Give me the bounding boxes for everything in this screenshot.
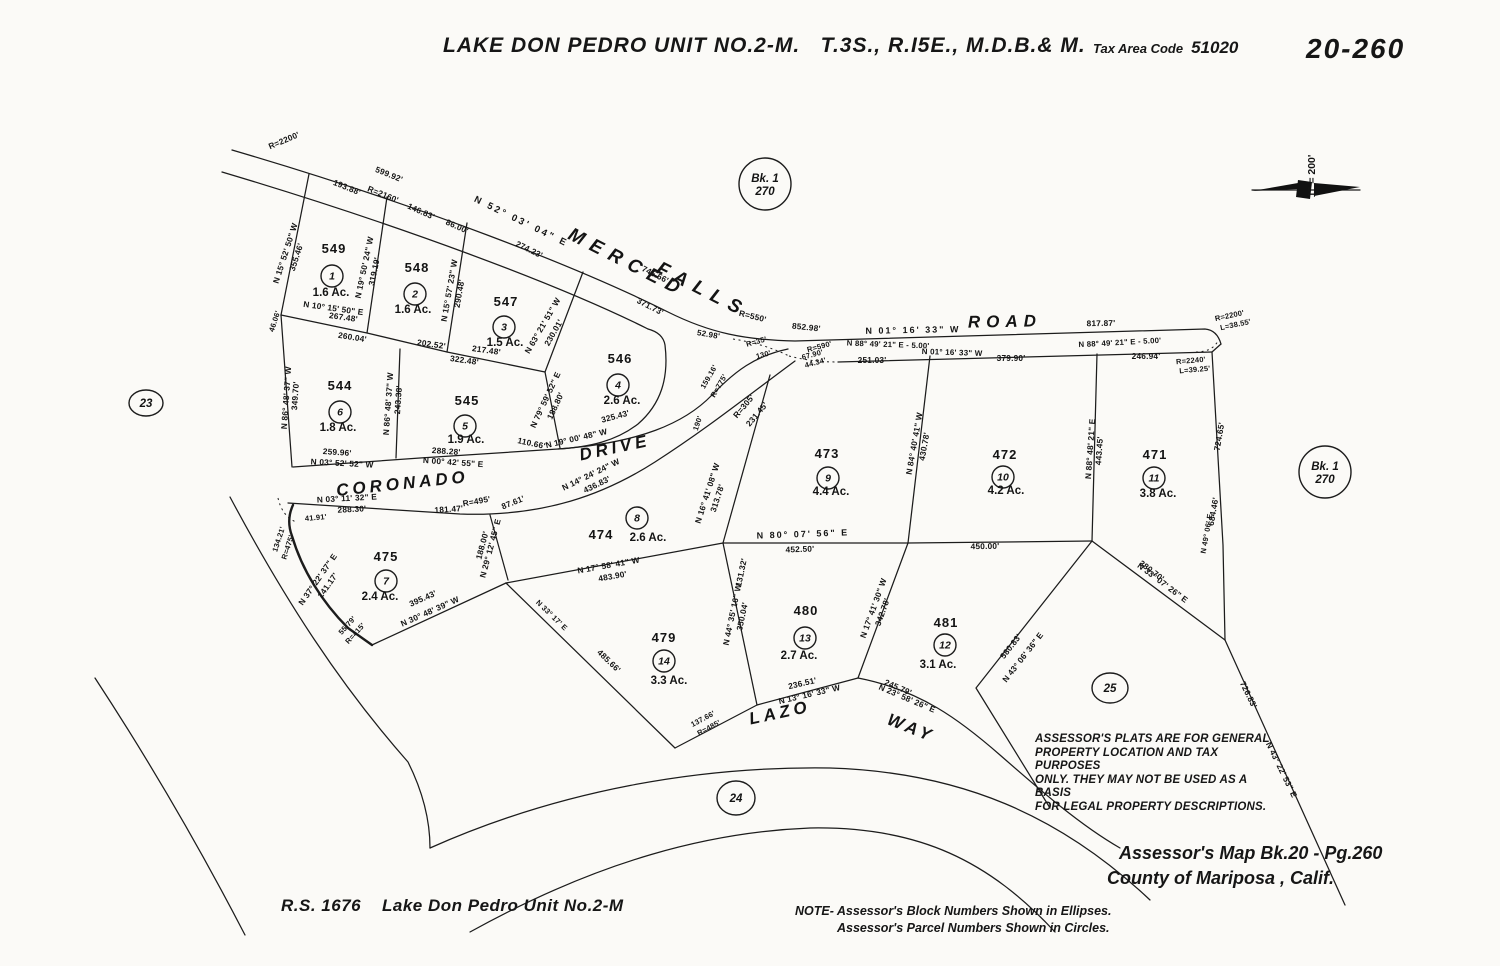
- dimension-label: 110.66': [517, 435, 547, 451]
- disclaimer-line: PROPERTY LOCATION AND TAX PURPOSES: [1035, 747, 1285, 774]
- block-marker-label: 270: [754, 186, 775, 198]
- disclaimer-line: FOR LEGAL PROPERTY DESCRIPTIONS.: [1035, 801, 1285, 815]
- tax-area-label: Tax Area Code: [1093, 41, 1183, 56]
- dimension-label: 193.88': [332, 177, 362, 197]
- boundary-line: [1092, 541, 1225, 640]
- dimension-label: 259.96': [323, 446, 352, 458]
- dimension-label: 274.23': [514, 239, 544, 261]
- block-marker-label: 25: [1103, 683, 1117, 695]
- dimension-label: 724.65': [1212, 421, 1227, 451]
- parcel-544-acreage: 1.8 Ac.: [320, 422, 357, 434]
- dimension-label: N 80° 07' 56" E: [756, 527, 849, 540]
- dimension-label: R=35': [745, 335, 768, 349]
- parcel-481-acreage: 3.1 Ac.: [920, 659, 957, 671]
- dimension-label: N 49° 06' E: [1199, 513, 1215, 554]
- dimension-label: 87.61': [500, 493, 526, 511]
- parcel-474-number: 474: [589, 527, 614, 542]
- parcel-474-acreage: 2.6 Ac.: [630, 532, 667, 544]
- dimension-label: 41.91': [305, 512, 327, 523]
- parcel-480-acreage: 2.7 Ac.: [781, 650, 818, 662]
- boundary-line: [1212, 352, 1225, 640]
- disclaimer-line: ONLY. THEY MAY NOT BE USED AS A BASIS: [1035, 774, 1285, 801]
- dimension-label: 181.47': [434, 503, 463, 515]
- parcel-546-circled-index: 4: [614, 380, 621, 392]
- parcel-545-acreage: 1.9 Ac.: [448, 434, 485, 446]
- parcel-549-number: 549: [322, 241, 347, 256]
- scale-label: 1" = 200': [1306, 155, 1318, 198]
- parcel-472-circled-index: 10: [997, 472, 1009, 484]
- dimension-label: 325.43': [600, 408, 630, 425]
- parcel-473-number: 473: [815, 446, 840, 461]
- dimension-label: 251.03': [858, 355, 887, 365]
- disclaimer-note: ASSESSOR'S PLATS ARE FOR GENERAL PROPERT…: [1035, 733, 1285, 814]
- curve-tie-dotted-line: [278, 498, 296, 522]
- dimension-label: N 88° 49' 21" E - 5.00': [1078, 336, 1161, 349]
- tax-area-code: Tax Area Code51020: [1093, 38, 1238, 58]
- boundary-line: [558, 329, 666, 449]
- dimension-label: R=2160': [366, 183, 400, 205]
- parcel-481-number: 481: [934, 615, 959, 630]
- map-sheet-number: 20-260: [1306, 33, 1405, 65]
- map-credit: Assessor's Map Bk.20 - Pg.260 County of …: [1107, 841, 1382, 891]
- legend-note-parcels: Assessor's Parcel Numbers Shown in Circl…: [795, 920, 1112, 937]
- record-survey-reference: R.S. 1676 Lake Don Pedro Unit No.2-M: [281, 896, 624, 916]
- dimension-label: L=39.25': [1179, 364, 1211, 376]
- dimension-label: 443.45': [1093, 436, 1105, 465]
- dimension-label: N 33° 07' 26" E: [1136, 560, 1191, 605]
- block-marker-label: Bk. 1: [751, 173, 779, 185]
- disclaimer-line: ASSESSOR'S PLATS ARE FOR GENERAL: [1035, 733, 1285, 747]
- parcel-471-acreage: 3.8 Ac.: [1140, 488, 1177, 500]
- dimension-label: 379.90': [997, 353, 1026, 363]
- tax-area-value: 51020: [1191, 38, 1238, 57]
- credit-county: County of Mariposa , Calif.: [1107, 866, 1382, 891]
- parcel-547-acreage: 1.5 Ac.: [487, 337, 524, 349]
- dimension-label: 130': [755, 348, 772, 361]
- parcel-549-acreage: 1.6 Ac.: [313, 287, 350, 299]
- page-title: LAKE DON PEDRO UNIT NO.2-M. T.3S., R.I5E…: [443, 34, 1086, 58]
- dimension-label: 726.83': [1238, 680, 1260, 710]
- road-name-way: WAY: [885, 710, 938, 746]
- dimension-label: 202.52': [416, 337, 446, 351]
- dimension-label: 246.94': [1132, 351, 1161, 361]
- dimension-label: 52.98': [696, 328, 720, 341]
- parcel-471-number: 471: [1143, 447, 1168, 462]
- dimension-label: 452.50': [785, 544, 814, 555]
- credit-book-page: Assessor's Map Bk.20 - Pg.260: [1107, 841, 1382, 866]
- assessor-map-sheet: LAKE DON PEDRO UNIT NO.2-M. T.3S., R.I5E…: [0, 0, 1500, 966]
- dimension-label: R=495': [462, 494, 491, 509]
- parcel-475-circled-index: 7: [383, 576, 390, 588]
- block-marker-label: 23: [139, 398, 153, 410]
- road-name-road: ROAD: [968, 311, 1042, 331]
- boundary-line: [230, 497, 430, 848]
- parcel-481-circled-index: 12: [939, 640, 951, 652]
- dimension-label: 322.48': [449, 353, 479, 367]
- dimension-label: 485.66': [595, 647, 623, 674]
- legend-note: NOTE- Assessor's Block Numbers Shown in …: [795, 903, 1112, 937]
- parcel-548-circled-index: 2: [411, 289, 418, 301]
- parcel-549-circled-index: 1: [329, 271, 335, 283]
- parcel-473-circled-index: 9: [825, 473, 831, 485]
- dimension-label: R=2200': [267, 129, 301, 151]
- parcel-547-number: 547: [494, 294, 519, 309]
- parcel-480-circled-index: 13: [799, 633, 811, 645]
- dimension-label: 146.83': [406, 201, 436, 222]
- boundary-line: [95, 678, 245, 935]
- dimension-label: N 88° 49' 21" E - 5.00': [847, 339, 930, 351]
- parcel-472-acreage: 4.2 Ac.: [988, 485, 1025, 497]
- boundary-line: [232, 150, 1221, 344]
- dimension-label: 371.73': [635, 295, 665, 317]
- dimension-label: 46.06': [267, 309, 282, 332]
- dimension-label: 243.38': [392, 385, 404, 414]
- dimension-label: 817.87': [1086, 318, 1115, 329]
- parcel-547-circled-index: 3: [501, 322, 507, 334]
- block-marker-label: Bk. 1: [1311, 461, 1339, 473]
- parcel-479-number: 479: [652, 630, 677, 645]
- dimension-label: N 00° 42' 55" E: [423, 455, 484, 469]
- parcel-472-number: 472: [993, 447, 1018, 462]
- boundary-line: [545, 272, 583, 372]
- dimension-label: N 01° 16' 33" W: [922, 347, 983, 358]
- dimension-label: 86.00': [444, 217, 470, 236]
- parcel-544-circled-index: 6: [337, 407, 343, 419]
- dimension-label: N 01° 16' 33" W: [865, 324, 960, 336]
- boundary-line: [1212, 344, 1221, 352]
- dimension-label: 852.98': [791, 321, 821, 334]
- parcel-544-number: 544: [328, 378, 353, 393]
- dimension-label: 599.92': [374, 164, 404, 184]
- dimension-label: N 03° 52' 52" W: [310, 456, 373, 469]
- block-marker-label: 270: [1314, 474, 1335, 486]
- parcel-475-acreage: 2.4 Ac.: [362, 591, 399, 603]
- parcel-546-acreage: 2.6 Ac.: [604, 395, 641, 407]
- legend-note-blocks: NOTE- Assessor's Block Numbers Shown in …: [795, 903, 1112, 920]
- road-name-coronado: CORONADO: [335, 467, 469, 500]
- parcel-548-acreage: 1.6 Ac.: [395, 304, 432, 316]
- parcel-475-number: 475: [374, 549, 399, 564]
- parcel-480-number: 480: [794, 603, 819, 618]
- parcel-548-number: 548: [405, 260, 430, 275]
- dimension-label: 349.70': [289, 381, 301, 410]
- dimension-label: 450.00': [970, 541, 999, 552]
- parcel-545-circled-index: 5: [462, 421, 468, 433]
- parcel-479-circled-index: 14: [658, 656, 670, 668]
- block-marker-label: 24: [729, 793, 743, 805]
- parcel-473-acreage: 4.4 Ac.: [813, 486, 850, 498]
- parcel-479-acreage: 3.3 Ac.: [651, 675, 688, 687]
- boundary-line: [506, 583, 675, 748]
- dimension-label: 288.30': [337, 503, 366, 514]
- parcel-546-number: 546: [608, 351, 633, 366]
- parcel-map-canvas: R=2200'599.92'193.88'R=2160'146.83'86.00…: [0, 0, 1500, 966]
- parcel-471-circled-index: 11: [1149, 473, 1160, 485]
- parcel-545-number: 545: [455, 393, 480, 408]
- parcel-474-circled-index: 8: [634, 513, 640, 525]
